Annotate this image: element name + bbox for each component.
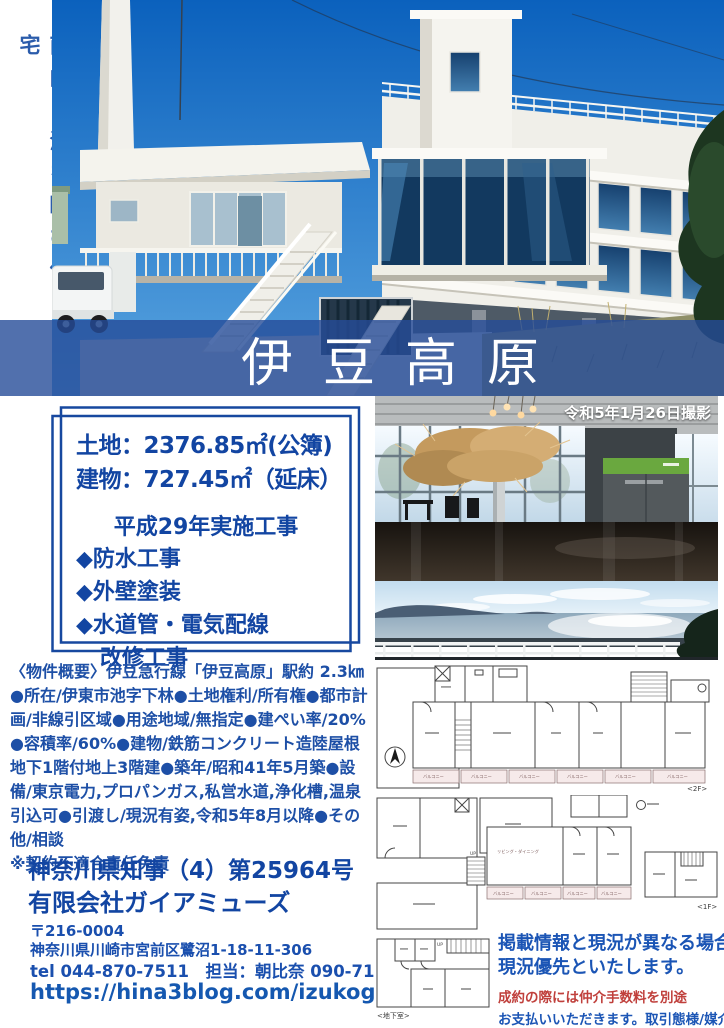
svg-text:バルコニー: バルコニー: [519, 774, 540, 779]
svg-text:バルコニー: バルコニー: [601, 891, 622, 896]
title-banner: 伊豆高原: [0, 320, 724, 396]
renovation-item: ◆水道管・電気配線: [76, 609, 350, 642]
svg-text:バルコニー: バルコニー: [493, 891, 514, 896]
stairs-hatch: [447, 939, 489, 953]
disclaimer: 掲載情報と現況が異なる場合は 現況優先といたします。 成約の際には仲介手数料を別…: [498, 932, 724, 1028]
disclaimer-line2: 現況優先といたします。: [498, 956, 724, 980]
banner-title: 伊豆高原: [241, 321, 569, 396]
svg-text:バルコニー: バルコニー: [615, 774, 636, 779]
interior-photo-art: [375, 396, 718, 581]
svg-text:バルコニー: バルコニー: [567, 891, 588, 896]
floor-plan-2f: バルコニー バルコニー バルコニー バルコニー バルコニー バルコニー <2F>: [375, 664, 720, 793]
floor-plan-1f: UP リビング・ダイニング バルコニー バルコニー バルコニー バルコニー <1…: [375, 795, 724, 933]
disclaimer-line4: お支払いいただきます。取引態様/媒介: [498, 1008, 724, 1028]
agency-name: 有限会社ガイアミューズ: [28, 883, 290, 918]
interior-photo: 令和5年1月26日撮影: [375, 396, 718, 581]
living-dining-label: リビング・ダイニング: [497, 848, 539, 855]
stairs-up-label: UP: [437, 942, 443, 948]
floor-label-basement: <地下室>: [377, 1011, 410, 1020]
stairs-hatch: [631, 672, 667, 702]
building-area-line: 建物：727.45㎡（延床）: [76, 463, 350, 497]
floor-label-1f: <1F>: [697, 903, 717, 911]
land-area-line: 土地：2376.85㎡(公簿): [76, 429, 350, 463]
renovation-item: ◆外壁塗装: [76, 576, 350, 609]
balcony-strip: バルコニー バルコニー バルコニー バルコニー バルコニー バルコニー: [413, 770, 705, 783]
svg-text:バルコニー: バルコニー: [531, 891, 552, 896]
renovation-list: ◆防水工事 ◆外壁塗装 ◆水道管・電気配線 改修工事: [76, 543, 350, 675]
disclaimer-line1: 掲載情報と現況が異なる場合は: [498, 932, 724, 956]
svg-text:バルコニー: バルコニー: [471, 774, 492, 779]
property-overview: 〈物件概要〉伊豆急行線「伊豆高原」駅約 2.3㎞●所在/伊東市池字下林●土地権利…: [10, 660, 372, 876]
ocean-view-photo: [375, 581, 718, 660]
floor-plan-basement: UP <地下室>: [375, 936, 497, 1020]
postal-code: 〒216-0004: [30, 920, 124, 941]
tower-roof-slab: [410, 10, 522, 19]
agency-address: 神奈川県川崎市宮前区鷺沼1-18-11-306: [30, 939, 312, 960]
license-number: 神奈川県知事（4）第25964号: [28, 851, 354, 885]
flyer-page: { "hero": { "vertical_tagline": "南向き海を臨む…: [0, 0, 724, 1024]
svg-text:バルコニー: バルコニー: [667, 774, 688, 779]
agency-url[interactable]: https://hina3blog.com/izukogen/: [30, 980, 412, 1004]
balcony-strip: バルコニー バルコニー バルコニー バルコニー: [487, 887, 631, 899]
renovation-item: ◆防水工事: [76, 543, 350, 576]
floor-plan-2f-art: バルコニー バルコニー バルコニー バルコニー バルコニー バルコニー <2F>: [375, 664, 720, 793]
compass-north-icon: [385, 747, 405, 767]
tagline-strip: 南向き海を臨む住宅: [0, 0, 52, 322]
floor-plan-1f-art: UP リビング・ダイニング バルコニー バルコニー バルコニー バルコニー <1…: [375, 795, 724, 933]
property-info-box: 土地：2376.85㎡(公簿) 建物：727.45㎡（延床） 平成29年実施工事…: [50, 405, 362, 655]
svg-text:バルコニー: バルコニー: [567, 774, 588, 779]
photo-date-caption: 令和5年1月26日撮影: [564, 402, 711, 423]
ocean-photo-art: [375, 581, 718, 660]
svg-text:バルコニー: バルコニー: [423, 774, 444, 779]
floor-plan-basement-art: UP <地下室>: [375, 936, 497, 1020]
renovation-title: 平成29年実施工事: [76, 509, 350, 541]
disclaimer-line3: 成約の際には仲介手数料を別途: [498, 986, 724, 1006]
overview-text: 〈物件概要〉伊豆急行線「伊豆高原」駅約 2.3㎞●所在/伊東市池字下林●土地権利…: [10, 660, 372, 852]
stairs-up-label: UP: [470, 851, 476, 857]
floor-label-2f: <2F>: [687, 785, 707, 793]
terrace-railing: [375, 642, 680, 657]
